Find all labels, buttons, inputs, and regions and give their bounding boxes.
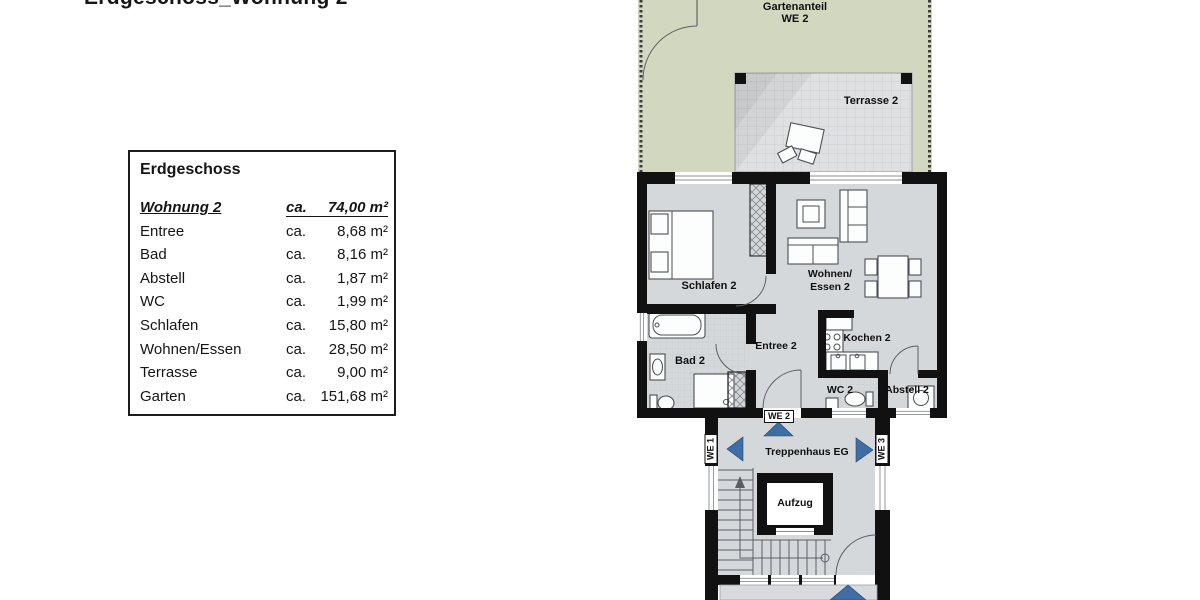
room-label-abstell: Abstell 2 — [885, 384, 929, 397]
door-tag-we2: WE 2 — [764, 410, 794, 423]
room-label-wc: WC 2 — [827, 384, 853, 397]
room-label-bad: Bad 2 — [675, 355, 705, 367]
floor-plan — [0, 0, 1200, 600]
shaft-hatch — [728, 372, 746, 408]
screenshot-root: { "title": "Erdgeschoss_Wohnung 2", "leg… — [0, 0, 1200, 600]
room-label-schlafen: Schlafen 2 — [681, 280, 736, 292]
room-label-kochen: Kochen 2 — [843, 332, 890, 345]
wardrobe-icon — [750, 184, 768, 256]
room-label-aufzug: Aufzug — [777, 497, 813, 510]
room-label-entree: Entree 2 — [755, 340, 796, 353]
bad-sink-icon — [650, 354, 665, 380]
tv-unit-icon — [797, 200, 825, 228]
room-label-wohnen-essen: Wohnen/ Essen 2 — [808, 268, 852, 293]
terrace-post — [901, 73, 912, 84]
terrace-post — [735, 73, 746, 84]
bathtub-icon — [649, 312, 705, 338]
door-tag-we1: WE 1 — [705, 434, 718, 464]
terrace-area — [735, 73, 912, 172]
room-label-treppenhaus: Treppenhaus EG — [765, 446, 848, 459]
garden-label: Gartenanteil WE 2 — [763, 1, 827, 25]
door-tag-we3: WE 3 — [876, 434, 889, 464]
bed-icon — [649, 211, 713, 279]
terrace-label: Terrasse 2 — [844, 95, 898, 107]
